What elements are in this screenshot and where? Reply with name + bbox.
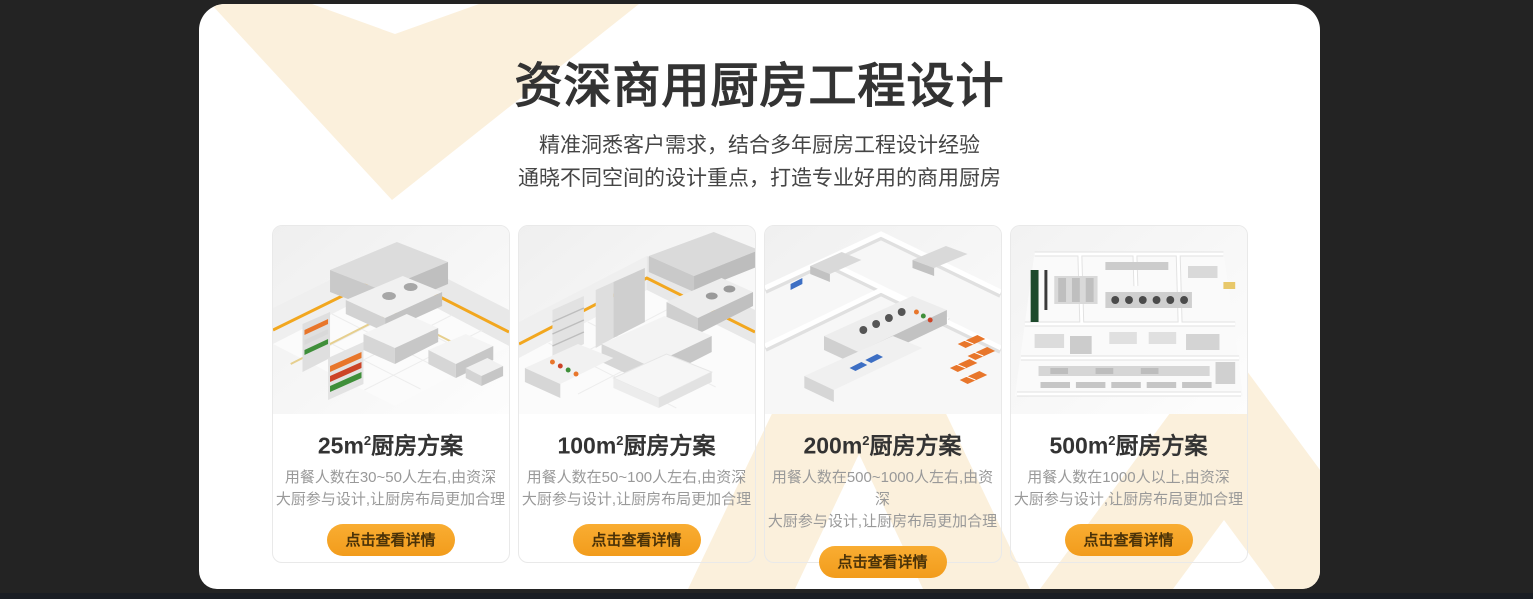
plan-title: 100m2厨房方案 [519, 427, 755, 460]
view-details-button[interactable]: 点击查看详情 [573, 524, 701, 556]
plan-description: 用餐人数在500~1000人左右,由资深 大厨参与设计,让厨房布局更加合理 [765, 467, 1001, 533]
kitchen-plan-card-100[interactable]: 100m2厨房方案 用餐人数在50~100人左右,由资深 大厨参与设计,让厨房布… [518, 225, 756, 563]
plan-title: 25m2厨房方案 [273, 427, 509, 460]
plan-title: 500m2厨房方案 [1011, 427, 1247, 460]
view-details-button[interactable]: 点击查看详情 [1065, 524, 1193, 556]
plan-description: 用餐人数在50~100人左右,由资深 大厨参与设计,让厨房布局更加合理 [519, 467, 755, 511]
kitchen-plan-image-25 [273, 226, 509, 414]
kitchen-plan-card-25[interactable]: 25m2厨房方案 用餐人数在30~50人左右,由资深 大厨参与设计,让厨房布局更… [272, 225, 510, 563]
view-details-button[interactable]: 点击查看详情 [819, 546, 947, 578]
kitchen-plan-image-100 [519, 226, 755, 414]
subtitle-line-2: 通晓不同空间的设计重点，打造专业好用的商用厨房 [199, 162, 1320, 195]
kitchen-plan-card-200[interactable]: 200m2厨房方案 用餐人数在500~1000人左右,由资深 大厨参与设计,让厨… [764, 225, 1002, 563]
content-panel: 资深商用厨房工程设计 精准洞悉客户需求，结合多年厨房工程设计经验 通晓不同空间的… [199, 4, 1320, 589]
view-details-button[interactable]: 点击查看详情 [327, 524, 455, 556]
plan-card-row: 25m2厨房方案 用餐人数在30~50人左右,由资深 大厨参与设计,让厨房布局更… [199, 225, 1320, 563]
plan-description: 用餐人数在1000人以上,由资深 大厨参与设计,让厨房布局更加合理 [1011, 467, 1247, 511]
plan-description: 用餐人数在30~50人左右,由资深 大厨参与设计,让厨房布局更加合理 [273, 467, 509, 511]
bottom-edge-bar [0, 593, 1533, 599]
page-title: 资深商用厨房工程设计 [199, 4, 1320, 116]
kitchen-plan-image-500 [1011, 226, 1247, 414]
kitchen-plan-card-500[interactable]: 500m2厨房方案 用餐人数在1000人以上,由资深 大厨参与设计,让厨房布局更… [1010, 225, 1248, 563]
plan-title: 200m2厨房方案 [765, 427, 1001, 460]
page-background: 资深商用厨房工程设计 精准洞悉客户需求，结合多年厨房工程设计经验 通晓不同空间的… [0, 0, 1533, 599]
kitchen-plan-image-200 [765, 226, 1001, 414]
subtitle-line-1: 精准洞悉客户需求，结合多年厨房工程设计经验 [199, 129, 1320, 162]
page-subtitle: 精准洞悉客户需求，结合多年厨房工程设计经验 通晓不同空间的设计重点，打造专业好用… [199, 129, 1320, 195]
